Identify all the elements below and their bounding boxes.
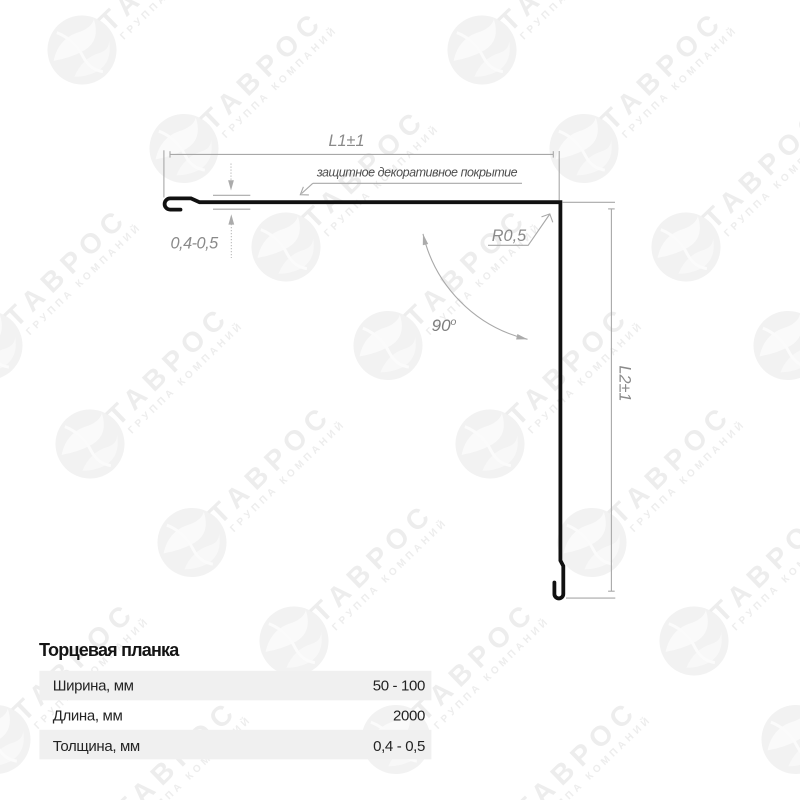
- svg-text:Торцевая планка: Торцевая планка: [39, 640, 180, 660]
- svg-text:Ширина, мм: Ширина, мм: [53, 677, 134, 694]
- svg-text:L2±1: L2±1: [616, 365, 634, 401]
- svg-text:0,4 - 0,5: 0,4 - 0,5: [373, 738, 425, 755]
- svg-text:Толщина, мм: Толщина, мм: [53, 738, 140, 755]
- svg-text:2000: 2000: [393, 708, 425, 725]
- svg-text:Длина, мм: Длина, мм: [53, 708, 123, 725]
- svg-text:0,4-0,5: 0,4-0,5: [171, 235, 220, 253]
- svg-text:L1±1: L1±1: [328, 132, 364, 150]
- svg-text:защитное декоративное покрытие: защитное декоративное покрытие: [316, 166, 518, 180]
- svg-text:R0,5: R0,5: [492, 227, 527, 245]
- svg-text:50 - 100: 50 - 100: [373, 677, 425, 694]
